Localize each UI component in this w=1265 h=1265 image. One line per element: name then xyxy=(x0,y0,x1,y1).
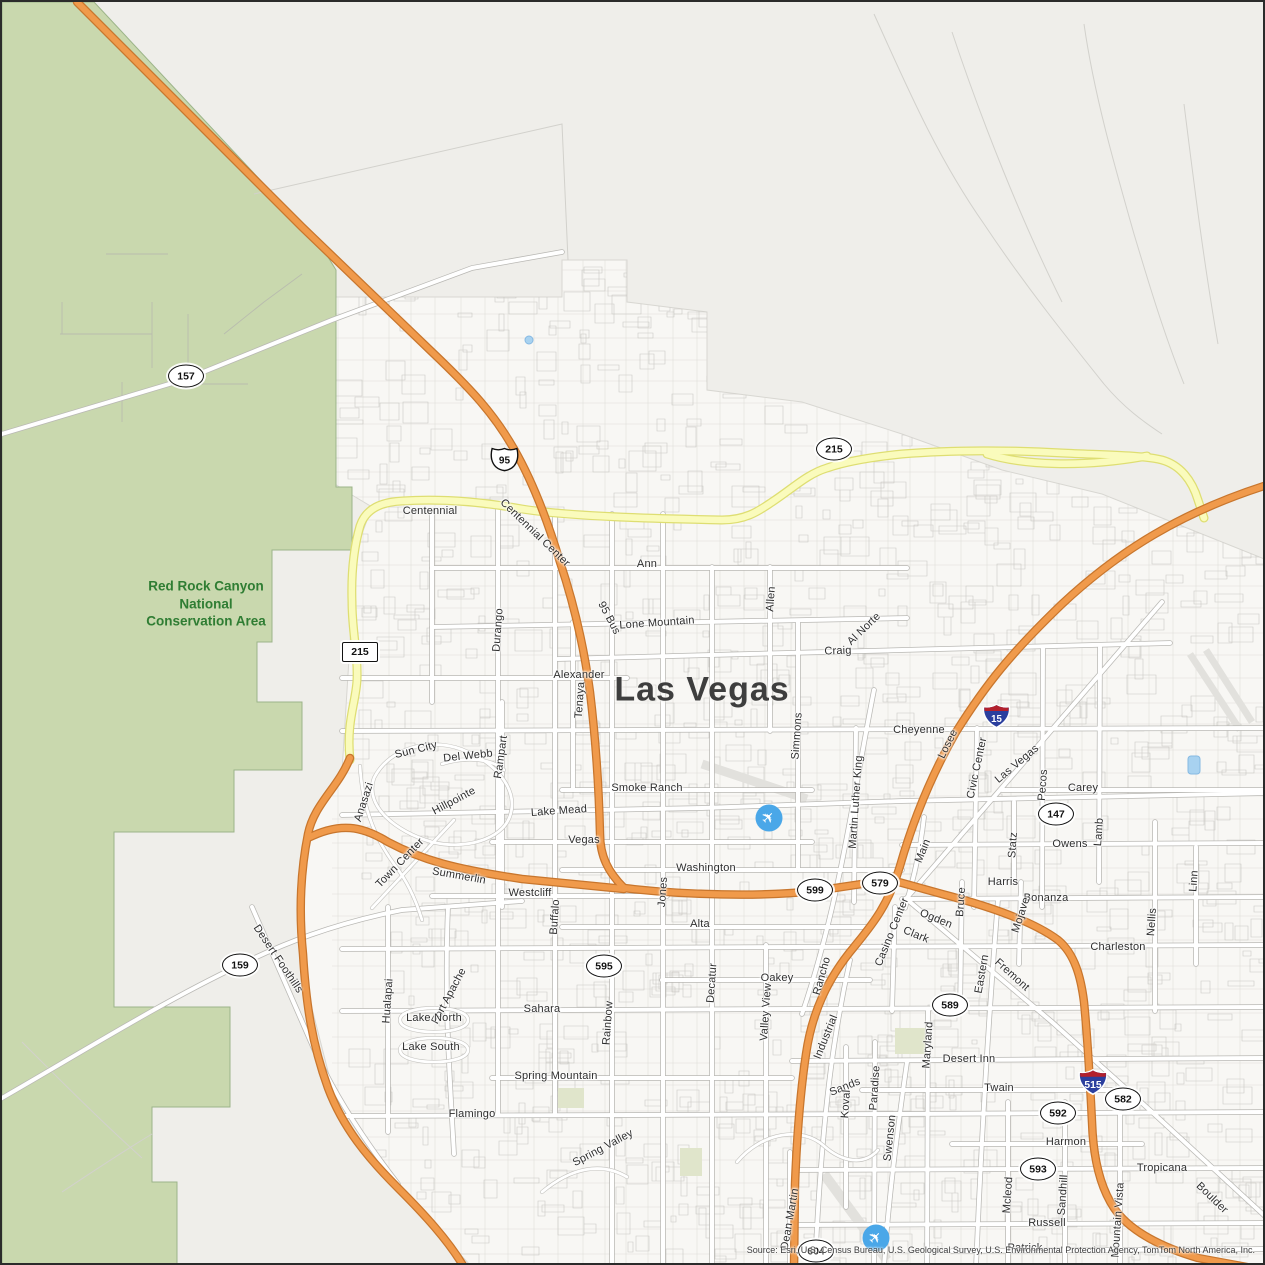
svg-text:95: 95 xyxy=(499,455,511,466)
route-shield-215: 215 xyxy=(342,642,378,662)
route-shield-159: 159 xyxy=(222,954,258,977)
route-shield-589: 589 xyxy=(932,994,968,1017)
route-shield-157: 157 xyxy=(168,365,204,388)
route-shield-599: 599 xyxy=(797,879,833,902)
city-label: Las Vegas xyxy=(614,671,789,710)
svg-text:15: 15 xyxy=(991,714,1002,725)
conservation-area-label: Red Rock Canyon National Conservation Ar… xyxy=(146,578,266,631)
svg-text:515: 515 xyxy=(1084,1080,1101,1091)
route-shield-147: 147 xyxy=(1038,803,1074,826)
route-shield-215: 215 xyxy=(816,438,852,461)
route-shield-592: 592 xyxy=(1040,1102,1076,1125)
attribution-text: Source: Esri, U.S. Census Bureau, U.S. G… xyxy=(747,1245,1255,1255)
route-shield-582: 582 xyxy=(1105,1088,1141,1111)
map-canvas[interactable]: Red Rock Canyon National Conservation Ar… xyxy=(0,0,1265,1265)
route-shield-595: 595 xyxy=(586,955,622,978)
conservation-area-label-line1: Red Rock Canyon xyxy=(146,578,266,596)
conservation-area-label-line2: National xyxy=(146,595,266,613)
route-shield-593: 593 xyxy=(1020,1158,1056,1181)
route-shield-579: 579 xyxy=(862,872,898,895)
airport-icon: ✈ xyxy=(756,805,783,832)
conservation-area-label-line3: Conservation Area xyxy=(146,613,266,631)
